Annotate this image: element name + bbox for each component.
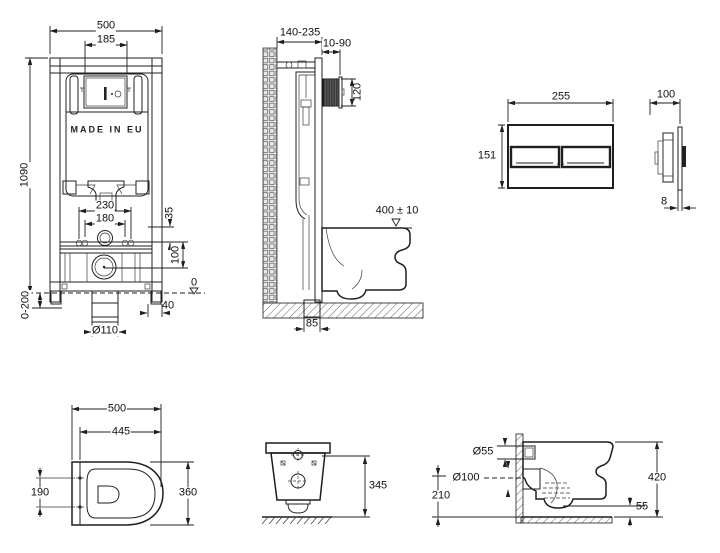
brand-mark: MADE IN EU bbox=[69, 125, 144, 136]
frame-left-rail bbox=[50, 58, 60, 302]
frame-side-drawing bbox=[263, 37, 423, 332]
dim-bowl-inner-length: 445 bbox=[111, 427, 131, 438]
flush-plate-front-drawing bbox=[498, 99, 613, 188]
plate-button-profile bbox=[682, 146, 686, 167]
wall-section bbox=[263, 48, 277, 303]
dim-outlet-height: 210 bbox=[431, 491, 451, 502]
dim-bowl-length: 500 bbox=[107, 404, 127, 415]
dim-plate-width: 255 bbox=[551, 92, 571, 103]
seat-contour bbox=[87, 469, 155, 518]
dim-frame-width: 500 bbox=[96, 21, 116, 32]
dim-bowl-total-height: 420 bbox=[647, 473, 667, 484]
dim-foot-width: 40 bbox=[161, 301, 175, 312]
bowl-top-drawing bbox=[36, 404, 194, 525]
dim-access-width: 185 bbox=[96, 35, 116, 46]
dim-outlet-diameter: Ø100 bbox=[452, 473, 481, 484]
dim-plate-depth: 100 bbox=[656, 90, 676, 101]
dim-bowl-height-tol: 400 ± 10 bbox=[375, 206, 420, 217]
bowl-opening bbox=[98, 486, 119, 503]
dim-fixing-outer: 230 bbox=[95, 201, 115, 212]
frame-rail-profile bbox=[315, 58, 322, 302]
plate-profile bbox=[678, 127, 682, 190]
access-window-mark bbox=[104, 87, 107, 100]
dim-foot-adjust: 0-200 bbox=[21, 290, 32, 320]
floor-section bbox=[263, 303, 423, 318]
flush-button-left bbox=[511, 147, 559, 167]
dim-plate-height: 151 bbox=[477, 151, 497, 162]
flush-button-right bbox=[562, 147, 610, 167]
bowl-side-profile bbox=[322, 228, 410, 299]
wall-hatch bbox=[516, 434, 523, 523]
dim-inlet-offset: 35 bbox=[165, 206, 176, 220]
dim-box-height: 120 bbox=[353, 82, 364, 102]
frame-front-drawing bbox=[25, 26, 205, 337]
dim-fixing-inner: 180 bbox=[95, 214, 115, 225]
dim-bowl-width: 360 bbox=[178, 488, 198, 499]
dim-bowl-clearance: 55 bbox=[635, 502, 649, 513]
frame-right-rail bbox=[152, 58, 162, 302]
technical-drawing-canvas: 500 185 1090 MADE IN EU 230 180 35 100 0… bbox=[0, 0, 720, 553]
dim-depth-range: 140-235 bbox=[279, 28, 321, 39]
floor-hatch bbox=[521, 517, 612, 523]
wall-bracket-bolt bbox=[286, 62, 292, 68]
dim-outlet-offset: 85 bbox=[305, 319, 319, 330]
dim-hole-spacing: 190 bbox=[30, 488, 50, 499]
dim-frame-height: 1090 bbox=[20, 162, 31, 188]
hanger-bar-right bbox=[134, 76, 142, 114]
dim-floor-level: 0 bbox=[190, 278, 198, 289]
bowl-top-outline bbox=[72, 462, 163, 525]
dim-plate-thickness: 8 bbox=[660, 197, 668, 208]
dim-finish-range: 10-90 bbox=[322, 39, 352, 50]
dim-inlet-diameter: Ø55 bbox=[472, 447, 495, 458]
dim-outlet-drop: 100 bbox=[171, 245, 182, 265]
bowl-front-drawing bbox=[262, 443, 370, 524]
dim-bowl-front-height: 345 bbox=[368, 481, 388, 492]
hanger-bar-left bbox=[70, 76, 78, 114]
dim-drain-diameter: Ø110 bbox=[91, 326, 119, 337]
flush-plate-side-drawing bbox=[650, 99, 696, 211]
